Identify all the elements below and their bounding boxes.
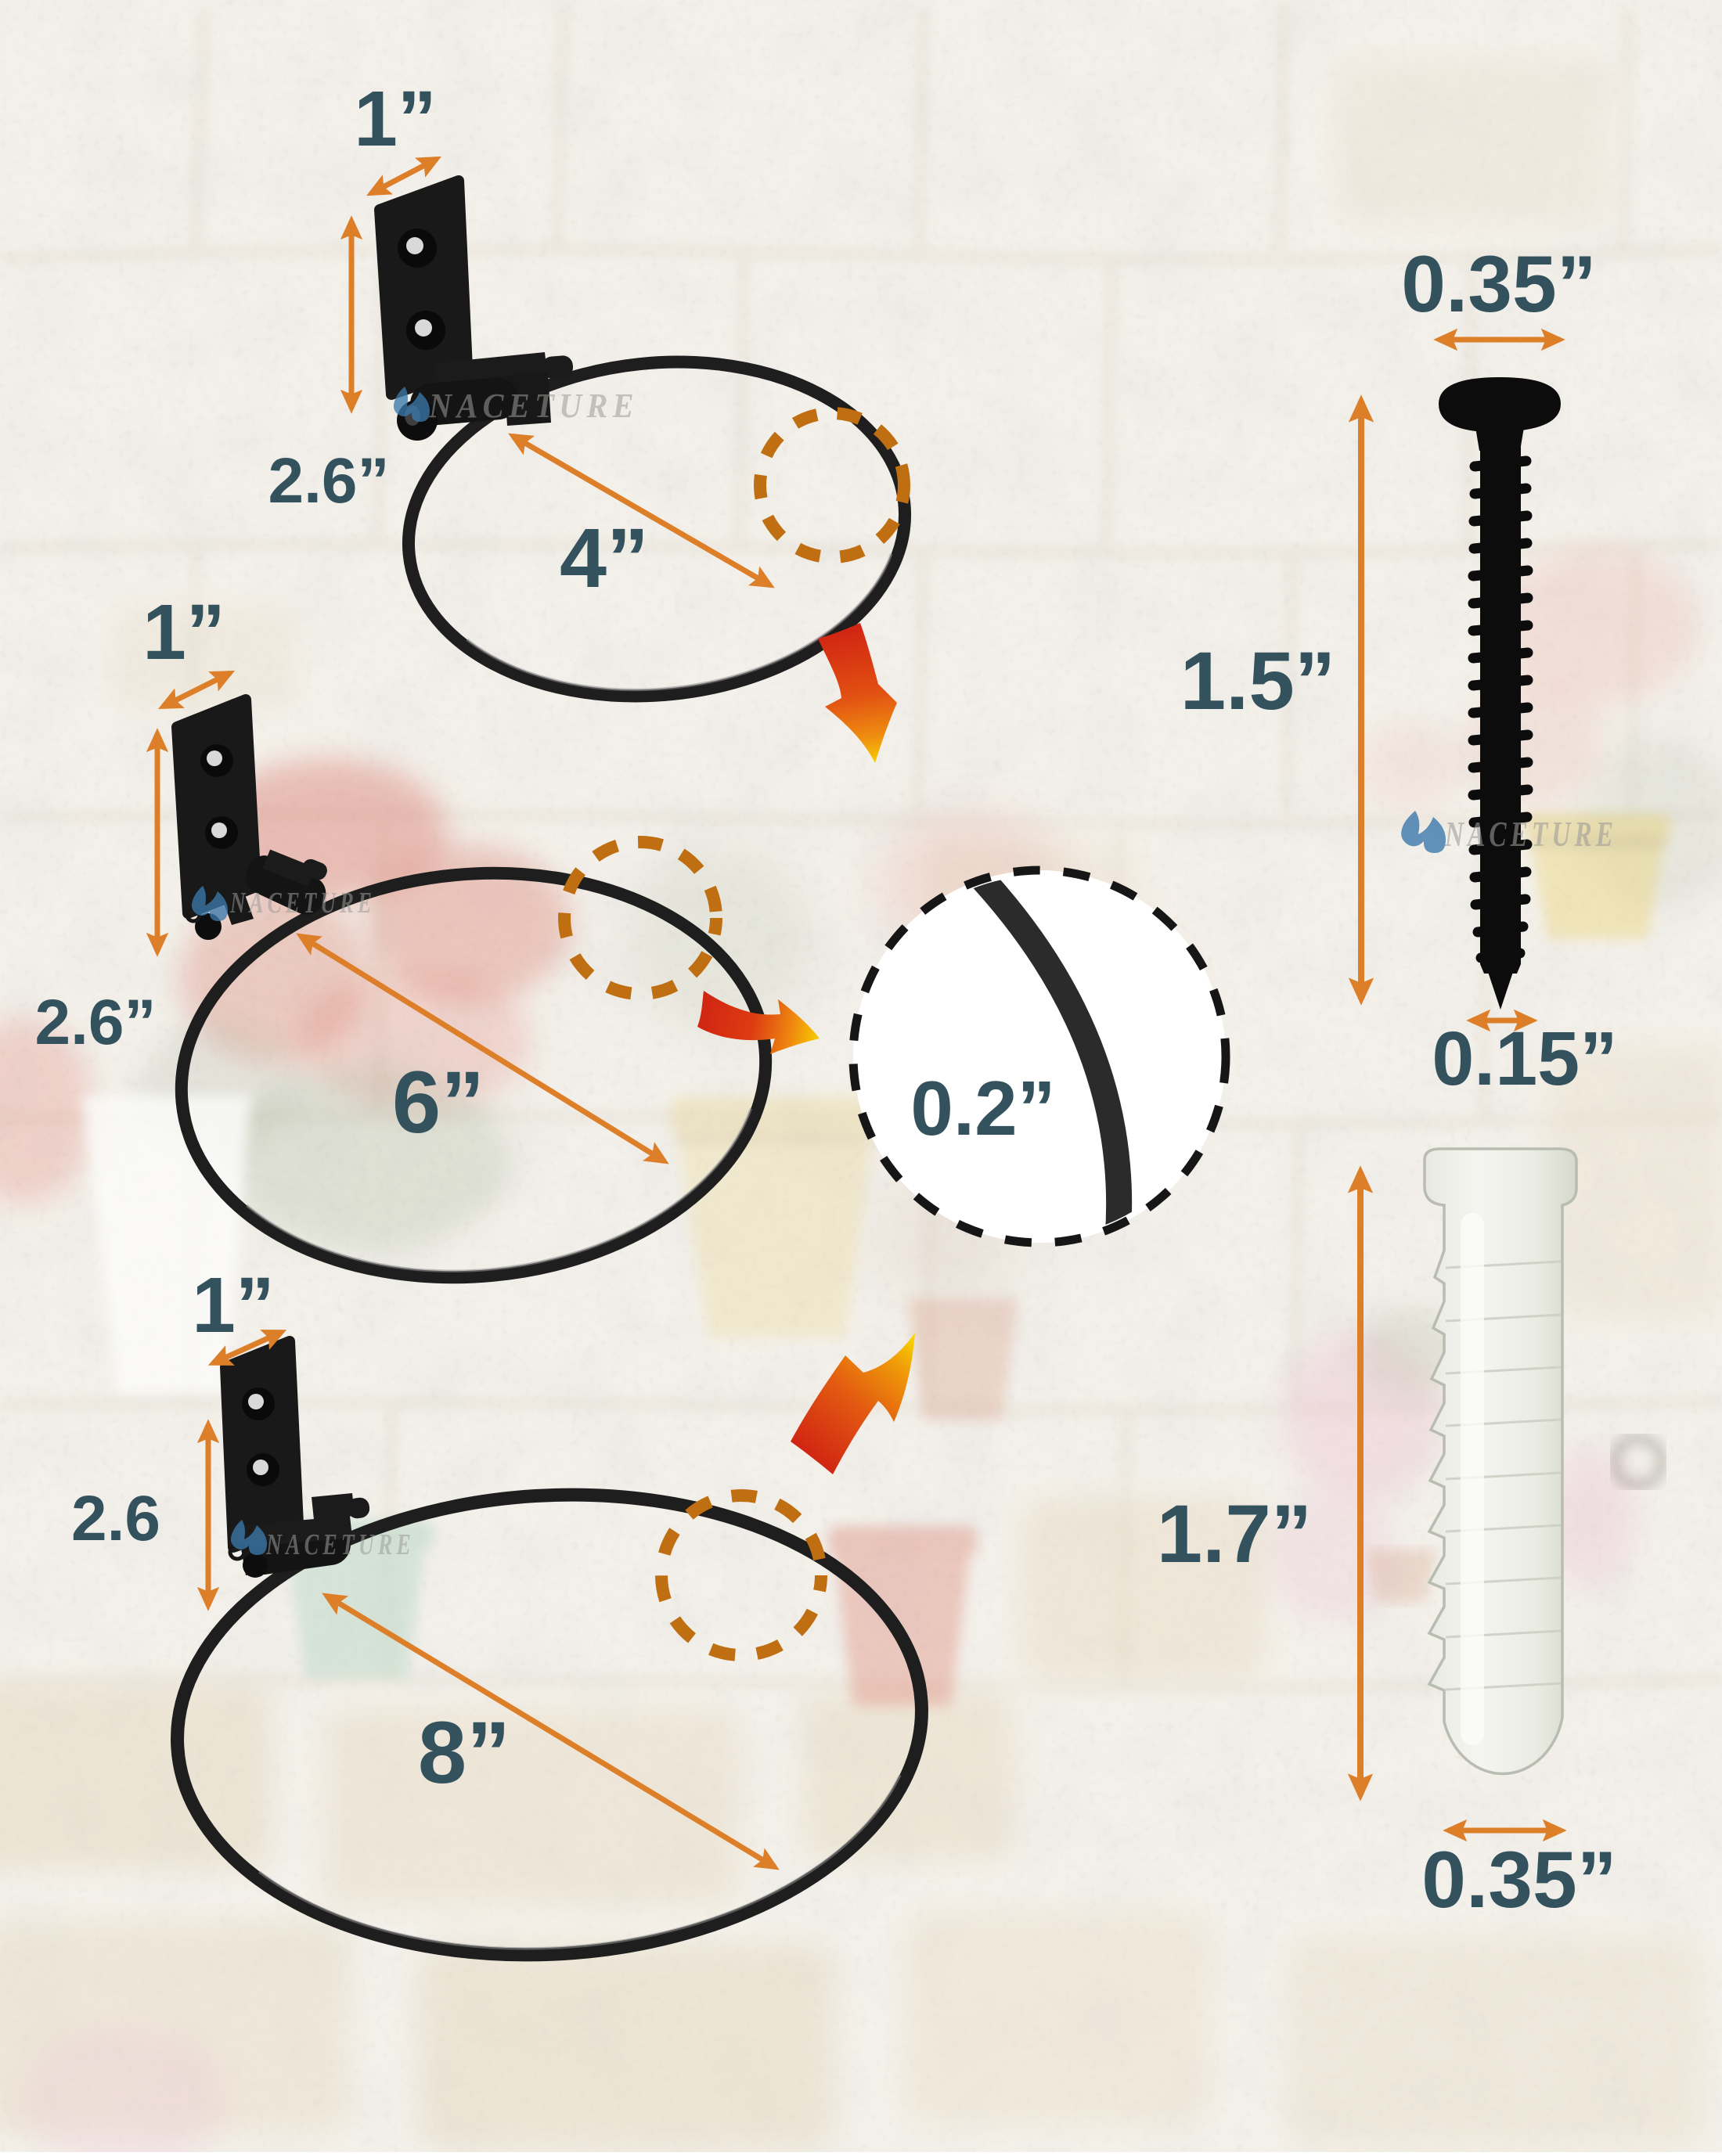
svg-text:0.2”: 0.2” (910, 1065, 1055, 1151)
svg-text:2.6”: 2.6” (268, 445, 390, 517)
svg-text:1”: 1” (192, 1262, 275, 1349)
svg-text:6”: 6” (392, 1053, 485, 1151)
svg-text:1”: 1” (354, 75, 437, 163)
svg-text:2.6: 2.6 (71, 1483, 160, 1554)
svg-text:0.35”: 0.35” (1421, 1835, 1617, 1924)
svg-text:8”: 8” (418, 1704, 510, 1801)
svg-text:4”: 4” (560, 510, 649, 605)
svg-text:2.6”: 2.6” (35, 987, 157, 1058)
svg-text:NACETURE: NACETURE (428, 387, 639, 425)
svg-text:1.7”: 1.7” (1157, 1488, 1312, 1580)
svg-text:1.5”: 1.5” (1180, 635, 1335, 727)
svg-text:1”: 1” (142, 588, 225, 676)
svg-text:0.15”: 0.15” (1432, 1016, 1617, 1101)
svg-text:NACETURE: NACETURE (229, 887, 376, 920)
svg-text:NACETURE: NACETURE (1444, 814, 1617, 854)
svg-text:0.35”: 0.35” (1401, 239, 1597, 329)
svg-text:NACETURE: NACETURE (265, 1528, 415, 1561)
